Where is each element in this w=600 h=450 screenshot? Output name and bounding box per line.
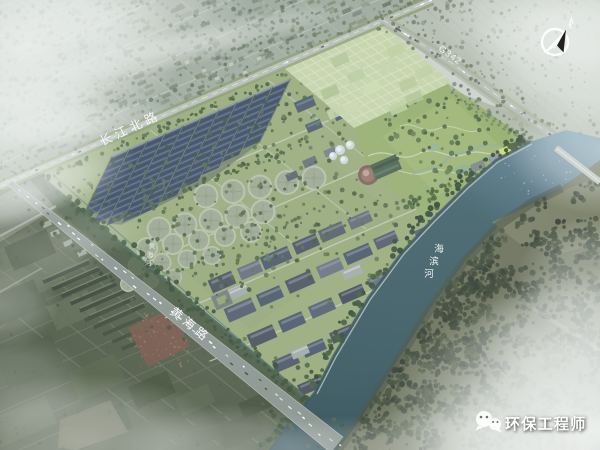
svg-text:环保工程师: 环保工程师 [505,415,587,433]
